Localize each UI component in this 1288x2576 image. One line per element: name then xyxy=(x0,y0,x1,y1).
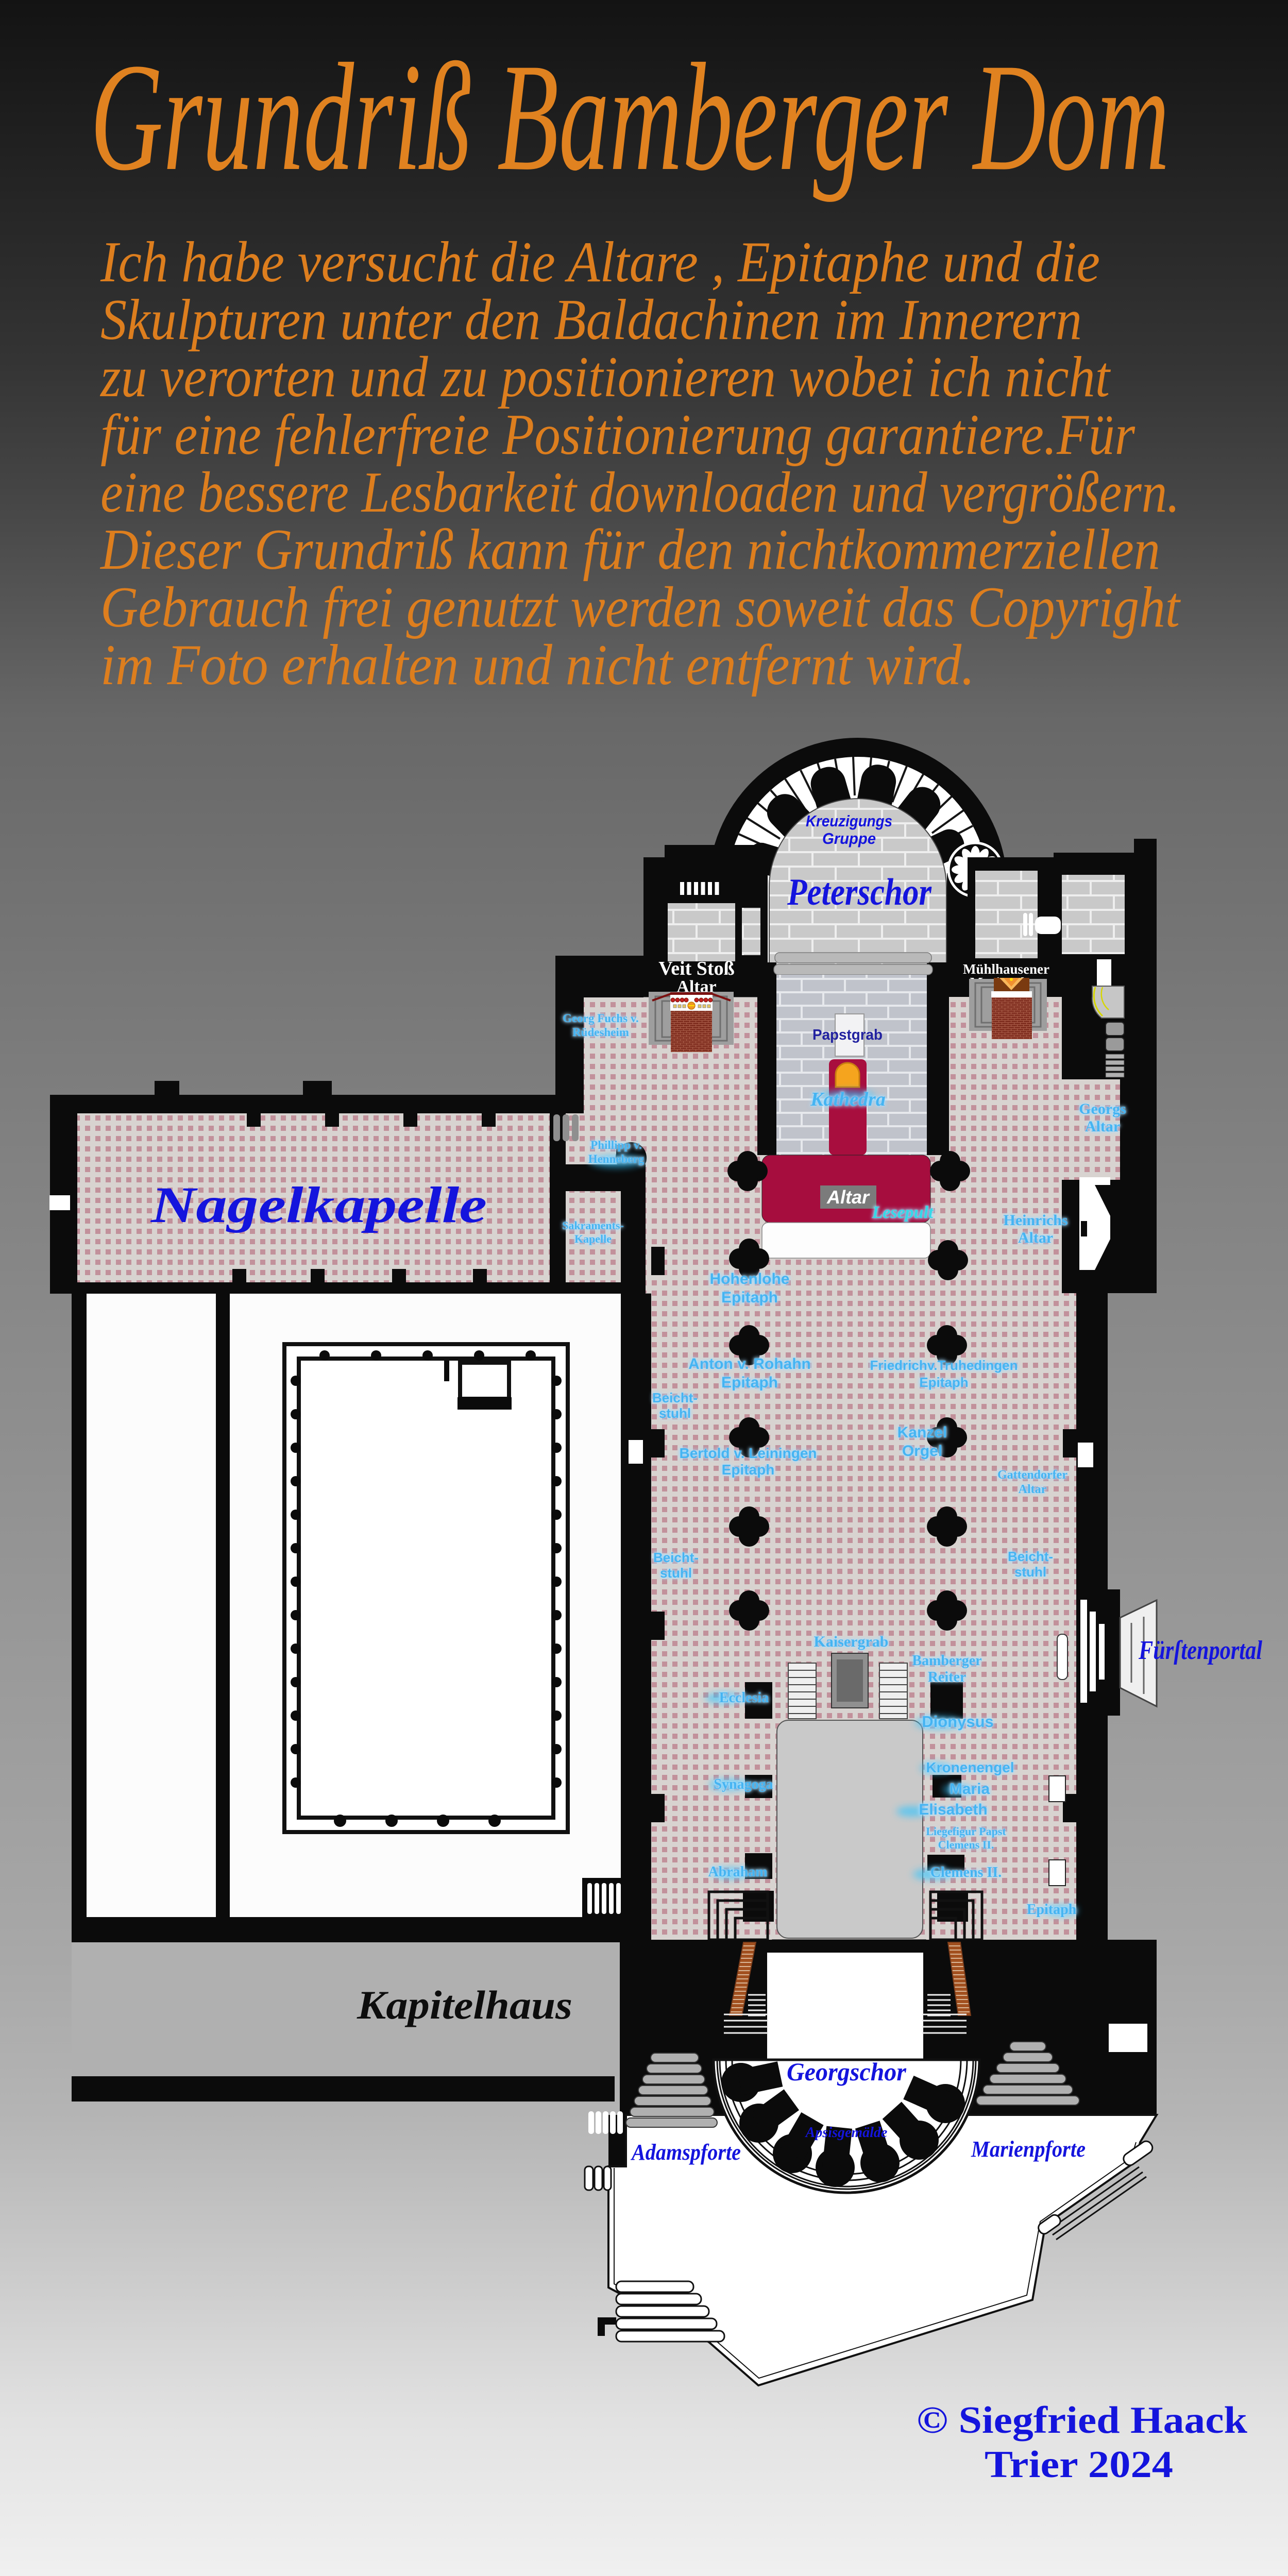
svg-text:Beicht-: Beicht- xyxy=(1008,1549,1053,1564)
svg-text:Friedrichv.Truhedingen: Friedrichv.Truhedingen xyxy=(870,1358,1018,1373)
svg-text:stuhl: stuhl xyxy=(1014,1564,1046,1580)
svg-text:Papstgrab: Papstgrab xyxy=(812,1027,883,1043)
svg-text:Reiter: Reiter xyxy=(928,1669,967,1685)
svg-text:Epitaph: Epitaph xyxy=(1027,1902,1077,1918)
svg-text:Georgs: Georgs xyxy=(1079,1100,1126,1117)
svg-text:Lesepult: Lesepult xyxy=(872,1203,935,1222)
svg-text:stuhl: stuhl xyxy=(659,1405,691,1421)
svg-text:Trier 2024: Trier 2024 xyxy=(985,2444,1173,2486)
svg-text:Bamberger: Bamberger xyxy=(912,1653,981,1669)
svg-text:Maria: Maria xyxy=(950,1781,990,1798)
svg-text:Georgschor: Georgschor xyxy=(787,2057,907,2086)
svg-text:Heinrichs: Heinrichs xyxy=(1004,1212,1068,1229)
svg-text:Abraham: Abraham xyxy=(708,1864,767,1880)
svg-text:Gattendorfer: Gattendorfer xyxy=(997,1468,1067,1482)
svg-text:Clemens II.: Clemens II. xyxy=(930,1865,1002,1880)
svg-text:Peterschor: Peterschor xyxy=(787,871,932,913)
svg-text:Phillipp v.: Phillipp v. xyxy=(590,1139,642,1151)
svg-text:Skulpturen unter den Baldachin: Skulpturen unter den Baldachinen im Inne… xyxy=(100,288,1082,352)
svg-text:© Siegfried Haack: © Siegfried Haack xyxy=(917,2399,1248,2442)
svg-text:Veit Stoß: Veit Stoß xyxy=(658,958,734,979)
svg-text:Kapitelhaus: Kapitelhaus xyxy=(357,1982,572,2027)
svg-text:Clemens II.: Clemens II. xyxy=(938,1838,994,1851)
svg-text:Dieser Grundriß kann für den n: Dieser Grundriß kann für den nichtkommer… xyxy=(99,518,1160,582)
svg-text:Synagoga: Synagoga xyxy=(714,1776,773,1792)
svg-text:Nagelkapelle: Nagelkapelle xyxy=(150,1176,487,1233)
svg-text:zu verorten und zu positionier: zu verorten und zu positionieren wobei i… xyxy=(99,345,1111,409)
svg-text:Beicht-: Beicht- xyxy=(652,1390,698,1405)
svg-text:Apsisgemälde: Apsisgemälde xyxy=(805,2125,888,2141)
svg-text:Epitaph: Epitaph xyxy=(919,1375,968,1390)
svg-text:Liegefigur Papst: Liegefigur Papst xyxy=(926,1825,1006,1838)
svg-text:Georg Fuchs v.: Georg Fuchs v. xyxy=(563,1012,639,1025)
svg-text:Bertold v. Leiningen: Bertold v. Leiningen xyxy=(679,1445,817,1461)
svg-text:Epitaph: Epitaph xyxy=(721,1374,778,1391)
svg-text:für eine fehlerfreie Positioni: für eine fehlerfreie Positionierung gara… xyxy=(100,403,1135,467)
svg-text:Hohenlohe: Hohenlohe xyxy=(710,1270,790,1287)
svg-text:Henneberg: Henneberg xyxy=(588,1153,645,1165)
svg-text:Kronenengel: Kronenengel xyxy=(926,1759,1014,1775)
svg-text:Kreuzigungs: Kreuzigungs xyxy=(806,812,892,830)
svg-text:Kanzel: Kanzel xyxy=(897,1424,947,1441)
svg-text:Sakraments-: Sakraments- xyxy=(562,1219,624,1232)
svg-text:Gruppe: Gruppe xyxy=(822,829,876,848)
svg-text:Altar: Altar xyxy=(1018,1229,1053,1246)
svg-text:Altar: Altar xyxy=(1085,1118,1120,1135)
svg-text:Altar: Altar xyxy=(1019,1483,1047,1496)
svg-text:Rüdesheim: Rüdesheim xyxy=(572,1026,629,1039)
svg-text:Adamspforte: Adamspforte xyxy=(630,2140,741,2165)
svg-text:Ich habe versucht die Altare ,: Ich habe versucht die Altare , Epitaphe … xyxy=(100,230,1100,294)
svg-text:Fürſtenportal: Fürſtenportal xyxy=(1138,1636,1262,1665)
svg-text:Kapelle: Kapelle xyxy=(574,1232,612,1245)
svg-text:Epitaph: Epitaph xyxy=(721,1289,778,1306)
svg-text:Orgel: Orgel xyxy=(902,1443,942,1460)
svg-text:Ecclesia: Ecclesia xyxy=(719,1690,769,1706)
svg-text:Beicht-: Beicht- xyxy=(653,1550,699,1565)
svg-text:Gebrauch frei genutzt werden: Gebrauch frei genutzt werden soweit das … xyxy=(100,575,1181,639)
svg-text:Epitaph: Epitaph xyxy=(722,1462,775,1478)
svg-text:Anton v. Rohahn: Anton v. Rohahn xyxy=(688,1355,811,1372)
svg-text:Marienpforte: Marienpforte xyxy=(971,2137,1086,2162)
svg-text:Grundriß Bamberger Dom: Grundriß Bamberger Dom xyxy=(90,31,1170,203)
svg-text:im Foto erhalten und nicht ent: im Foto erhalten und nicht entfernt wird… xyxy=(100,633,975,697)
svg-text:Elisabeth: Elisabeth xyxy=(919,1801,987,1818)
svg-text:Kaisergrab: Kaisergrab xyxy=(814,1633,889,1650)
svg-text:Kathedra: Kathedra xyxy=(810,1089,886,1110)
svg-text:eine bessere Lesbarkeit downlo: eine bessere Lesbarkeit downloaden und v… xyxy=(100,461,1180,524)
svg-text:Altar: Altar xyxy=(826,1187,870,1208)
svg-text:Dionysus: Dionysus xyxy=(922,1713,994,1731)
svg-text:stuhl: stuhl xyxy=(660,1565,692,1581)
